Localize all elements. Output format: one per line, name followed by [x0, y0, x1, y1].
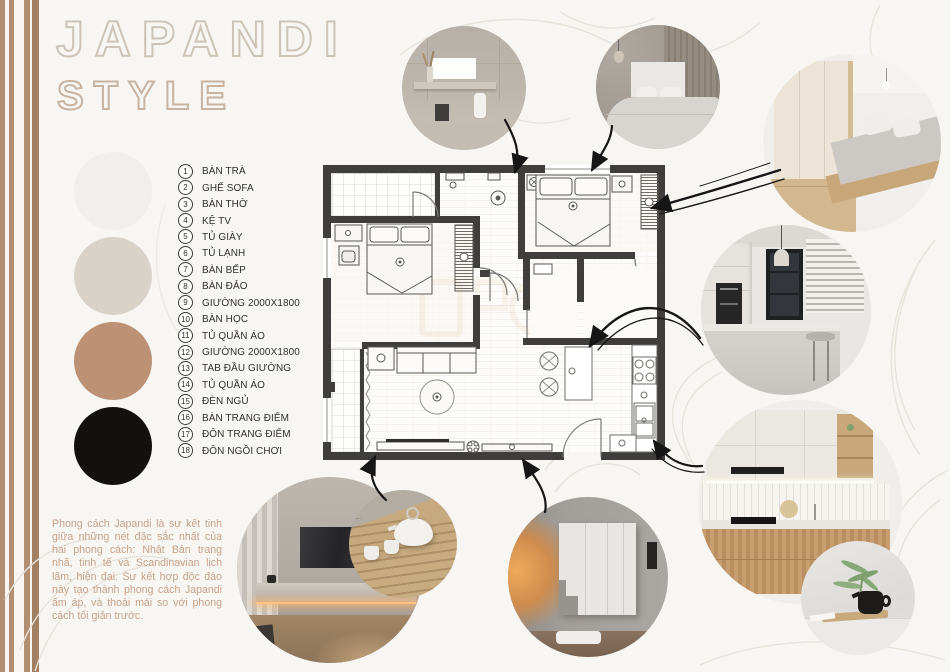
color-swatch-tan: [74, 322, 152, 400]
legend-item-label: TỦ GIÀY: [202, 231, 243, 243]
japandi-moodboard: JAPANDI STYLE 1BÀN TRÀ2GHẾ SOFA3BÀN THỜ4…: [0, 0, 950, 672]
legend-item-label: BÀN TRÀ: [202, 165, 246, 177]
legend-item: 6TỦ LẠNH: [178, 245, 338, 261]
blinds: [806, 239, 864, 314]
photo-vanity-bedroom: [402, 26, 526, 150]
legend-item-label: BÀN THỜ: [202, 198, 248, 210]
color-swatch-off-white: [74, 152, 152, 230]
legend-item-number: 1: [178, 164, 193, 179]
legend-item-label: BÀN BẾP: [202, 264, 246, 276]
tile-backsplash: [702, 484, 890, 521]
faucet: [814, 504, 816, 520]
legend-item: 1BÀN TRÀ: [178, 163, 338, 179]
range-hood: [731, 467, 784, 474]
legend-item-label: ĐÔN TRANG ĐIỂM: [202, 428, 291, 440]
legend-item: 9GIƯỜNG 2000X1800: [178, 295, 338, 311]
legend-item-label: TỦ QUẦN ÁO: [202, 330, 265, 342]
color-palette: [74, 152, 154, 492]
legend-item-number: 18: [178, 443, 193, 458]
stool: [435, 104, 449, 121]
legend-item-number: 2: [178, 180, 193, 195]
legend-item: 5TỦ GIÀY: [178, 229, 338, 245]
legend-item-label: GIƯỜNG 2000X1800: [202, 297, 300, 309]
legend-item-number: 9: [178, 295, 193, 310]
legend-item-number: 7: [178, 262, 193, 277]
photo-tea-set: [349, 490, 457, 598]
legend-item-label: BÀN TRANG ĐIỂM: [202, 412, 289, 424]
color-swatch-black: [74, 407, 152, 485]
photo-bamboo-teapot: [801, 541, 915, 655]
legend-item-number: 3: [178, 197, 193, 212]
photo-wardrobe-warm-light: [508, 497, 668, 657]
white-teapot: [394, 518, 433, 546]
legend-item: 11TỦ QUẦN ÁO: [178, 327, 338, 343]
black-niche: [647, 542, 657, 569]
legend-item: 14TỦ QUẦN ÁO: [178, 377, 338, 393]
legend-item: 8BÀN ĐẢO: [178, 278, 338, 294]
led-strip: [256, 602, 416, 604]
photo-wardrobe-platform-bed: [763, 54, 941, 232]
legend-item: 7BÀN BẾP: [178, 262, 338, 278]
legend-item-number: 10: [178, 312, 193, 327]
legend-item: 10BÀN HỌC: [178, 311, 338, 327]
black-teapot: [858, 591, 883, 614]
legend-item-number: 17: [178, 427, 193, 442]
legend-item-label: BÀN ĐẢO: [202, 280, 248, 292]
legend-item-label: ĐÔN NGỒI CHƠI: [202, 445, 282, 457]
bed: [606, 97, 720, 149]
photo-bedroom-stone-wall: [596, 25, 720, 149]
legend-item-label: GHẾ SOFA: [202, 182, 254, 194]
furniture-legend: 1BÀN TRÀ2GHẾ SOFA3BÀN THỜ4KỆ TV5TỦ GIÀY6…: [178, 163, 338, 459]
color-swatch-greige: [74, 237, 152, 315]
console-shelf: [414, 82, 496, 89]
legend-item-number: 11: [178, 328, 193, 343]
bar-stool: [806, 332, 835, 341]
side-table: [239, 624, 275, 655]
legend-item: 2GHẾ SOFA: [178, 179, 338, 195]
legend-item: 13TAB ĐẦU GIƯỜNG: [178, 360, 338, 376]
mirror: [432, 58, 477, 79]
floor-plan: [322, 152, 682, 468]
cooktop: [731, 517, 776, 524]
legend-item: 16BÀN TRANG ĐIỂM: [178, 410, 338, 426]
legend-item-number: 16: [178, 410, 193, 425]
photo-kitchen-island-window: [701, 225, 871, 395]
legend-item-number: 15: [178, 394, 193, 409]
tea-cup: [384, 540, 399, 554]
open-shelf: [837, 414, 874, 477]
legend-item-label: TAB ĐẦU GIƯỜNG: [202, 362, 291, 374]
bathrooms: [530, 264, 657, 338]
legend-item-number: 8: [178, 279, 193, 294]
legend-item-label: BÀN HỌC: [202, 313, 248, 325]
legend-item-number: 14: [178, 377, 193, 392]
legend-item-number: 12: [178, 345, 193, 360]
legend-item-label: TỦ QUẦN ÁO: [202, 379, 265, 391]
legend-item-number: 13: [178, 361, 193, 376]
style-description: Phong cách Japandi là sự kết tinh giữa n…: [52, 518, 222, 623]
legend-item-label: TỦ LẠNH: [202, 247, 245, 259]
page-subtitle: STYLE: [57, 74, 236, 119]
wall-lamp: [882, 81, 890, 89]
legend-item-number: 4: [178, 213, 193, 228]
curtains: [237, 488, 278, 626]
legend-item: 12GIƯỜNG 2000X1800: [178, 344, 338, 360]
warm-cove-light: [508, 513, 564, 641]
balcony-top: [331, 173, 435, 216]
legend-item: 15ĐÈN NGỦ: [178, 393, 338, 409]
legend-item: 18ĐÔN NGỒI CHƠI: [178, 442, 338, 458]
legend-item: 3BÀN THỜ: [178, 196, 338, 212]
legend-item-label: GIƯỜNG 2000X1800: [202, 346, 300, 358]
kettle: [267, 575, 276, 583]
tea-cup: [364, 546, 379, 560]
legend-item-label: ĐÈN NGỦ: [202, 395, 249, 407]
page-title: JAPANDI: [56, 10, 349, 68]
legend-item-label: KỆ TV: [202, 215, 231, 227]
legend-item-number: 6: [178, 246, 193, 261]
floor-lamp: [474, 93, 486, 118]
legend-item: 17ĐÔN TRANG ĐIỂM: [178, 426, 338, 442]
legend-item-number: 5: [178, 229, 193, 244]
pendant-lamp: [774, 249, 789, 266]
legend-item: 4KỆ TV: [178, 212, 338, 228]
